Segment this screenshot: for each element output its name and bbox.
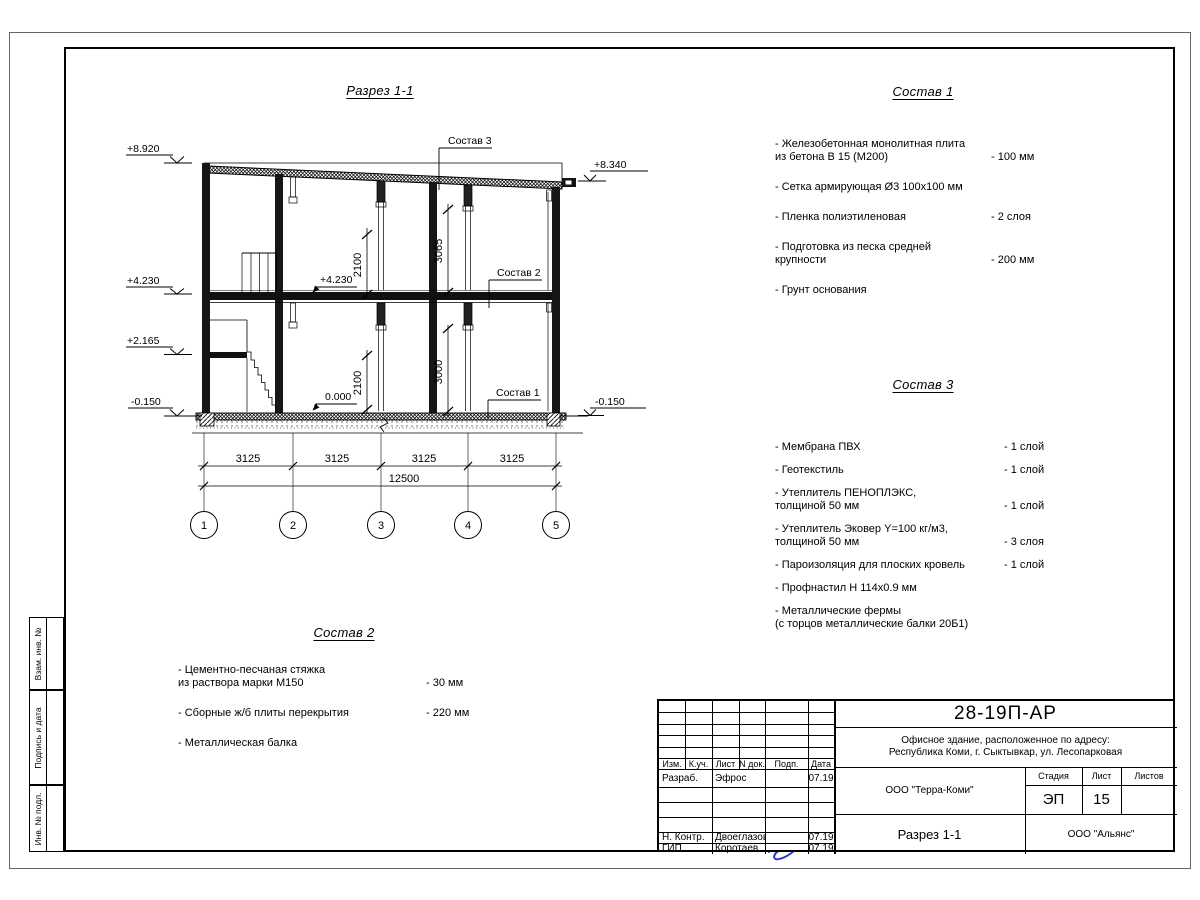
tb-role-gip: ГИП — [659, 843, 712, 854]
elev-text: -0.150 — [595, 396, 625, 408]
item-text: - Сетка армирующая Ø3 100х100 мм — [775, 181, 991, 194]
list-item: - Мембрана ПВХ- 1 слой — [775, 441, 1060, 454]
foundation-block-left — [200, 413, 214, 426]
item-text: - Металлические фермы (с торцов металлич… — [775, 605, 1004, 631]
bottom-dimensions: 3125 3125 3125 3125 12500 — [198, 433, 562, 511]
stage-label: Стадия — [1025, 767, 1082, 785]
stair-railing-upper — [242, 253, 277, 292]
list-item: - Подготовка из песка средней крупности-… — [775, 241, 1047, 267]
elev-minus0150-right: -0.150 — [578, 396, 646, 416]
list-item: - Сетка армирующая Ø3 100х100 мм — [775, 181, 1047, 194]
grid-extension-lines — [204, 433, 556, 511]
list-item: - Сборные ж/б плиты перекрытия- 220 мм — [178, 707, 478, 720]
item-text: - Сборные ж/б плиты перекрытия — [178, 707, 426, 720]
vertical-dimensions: 2100 2100 3065 3000 — [352, 204, 453, 417]
stage-value: ЭП — [1025, 785, 1082, 814]
elev-8340: +8.340 — [578, 159, 648, 181]
item-value: - 200 мм — [991, 254, 1047, 267]
item-text: - Железобетонная монолитная плита из бет… — [775, 138, 991, 164]
item-value: - 1 слой — [1004, 441, 1060, 454]
item-value: - 1 слой — [1004, 464, 1060, 477]
tb-line — [659, 817, 834, 818]
tb-line — [659, 747, 834, 748]
item-text: - Подготовка из песка средней крупности — [775, 241, 991, 267]
list-item: - Пленка полиэтиленовая- 2 слоя — [775, 211, 1047, 224]
elev-text: +4.230 — [127, 275, 160, 287]
project-address: Офисное здание, расположенное по адресу:… — [834, 727, 1177, 767]
tb-line — [659, 802, 834, 803]
tb-col-podp: Подп. — [765, 758, 808, 769]
tb-date: 07.19 — [808, 769, 834, 787]
tb-col-kuch: К.уч. — [685, 758, 712, 769]
grid-bubble-2: 2 — [290, 520, 296, 532]
elev-minus0150-left: -0.150 — [128, 396, 192, 416]
elev-text: +8.920 — [127, 143, 160, 155]
tb-line — [659, 712, 834, 713]
tb-name-korotaev: Коротаев — [712, 843, 765, 854]
callout-text: Состав 3 — [448, 135, 492, 147]
stair-steps — [247, 352, 276, 412]
item-text: - Пленка полиэтиленовая — [775, 211, 991, 224]
tb-role-razrab: Разраб. — [659, 769, 712, 787]
item-text: - Утеплитель ПЕНОПЛЭКС, толщиной 50 мм — [775, 487, 1004, 513]
tb-name-dvoeglazov: Двоеглазов — [712, 832, 765, 843]
callout-sostav2: Состав 2 — [489, 267, 542, 308]
item-value: - 1 слой — [1004, 559, 1060, 572]
elev-text: +8.340 — [594, 159, 627, 171]
address-line1: Офисное здание, расположенное по адресу: — [901, 735, 1110, 747]
dim-text: 3000 — [433, 360, 445, 384]
item-text: - Цементно-песчаная стяжка из раствора м… — [178, 664, 426, 690]
stair-landing — [210, 352, 247, 358]
drawing-sheet: Взам. инв. № Подпись и дата Инв. № подл. — [0, 0, 1200, 900]
elev-8920: +8.920 — [126, 143, 192, 163]
elev-text: -0.150 — [131, 396, 161, 408]
elev-0000-inner: 0.000 — [313, 391, 357, 411]
title-block: Изм. К.уч. Лист N док. Подп. Дата Разраб… — [657, 699, 1175, 852]
list-item: - Утеплитель ПЕНОПЛЭКС, толщиной 50 мм- … — [775, 487, 1060, 513]
grid-bubble-5: 5 — [553, 520, 559, 532]
tb-name-efros: Эфрос — [712, 769, 765, 787]
list-item: - Пароизоляция для плоских кровель- 1 сл… — [775, 559, 1060, 572]
sostav1-title: Состав 1 — [843, 84, 1003, 99]
contractor-name: ООО "Альянс" — [1025, 814, 1177, 854]
sostav3-title: Состав 3 — [843, 377, 1003, 392]
elevation-markers-left: +8.920 +4.230 +2.165 -0.150 — [126, 143, 192, 416]
grid-bubble-3: 3 — [378, 520, 384, 532]
tb-date: 07.19 — [808, 843, 834, 854]
list-item: - Железобетонная монолитная плита из бет… — [775, 138, 1047, 164]
drawing-name: Разрез 1-1 — [834, 814, 1025, 854]
tb-line — [659, 735, 834, 736]
floor-slab-level2 — [210, 291, 552, 303]
item-value: - 2 слоя — [991, 211, 1047, 224]
tb-role-nkontr: Н. Контр. — [659, 832, 712, 843]
dim-2100-top: 2100 — [352, 228, 372, 299]
sostav1-list: - Железобетонная монолитная плита из бет… — [775, 138, 1047, 314]
tb-line — [659, 787, 834, 788]
item-text: - Мембрана ПВХ — [775, 441, 1004, 454]
tb-col-data: Дата — [808, 758, 834, 769]
dim-text: 3065 — [433, 239, 445, 263]
span-dim-text: 3125 — [500, 453, 524, 465]
item-text: - Грунт основания — [775, 284, 991, 297]
ground-floor-slab — [166, 413, 588, 433]
dim-text: 2100 — [352, 371, 364, 395]
list-item: - Геотекстиль- 1 слой — [775, 464, 1060, 477]
callout-text: Состав 2 — [497, 267, 541, 279]
tb-col-list: Лист — [712, 758, 739, 769]
item-value: - 1 слой — [1004, 500, 1060, 513]
sostav2-list: - Цементно-песчаная стяжка из раствора м… — [178, 664, 478, 767]
sheet-number: 15 — [1082, 785, 1121, 814]
staircase — [210, 253, 277, 412]
sostav2-title: Состав 2 — [264, 625, 424, 640]
list-item: - Грунт основания — [775, 284, 1047, 297]
roof-assembly — [204, 163, 576, 189]
wall-grid1 — [202, 163, 210, 423]
callout-text: Состав 1 — [496, 387, 540, 399]
span-dim-text: 3125 — [236, 453, 260, 465]
tb-date: 07.19 — [808, 832, 834, 843]
item-value: - 30 мм — [426, 677, 478, 690]
item-text: - Металлическая балка — [178, 737, 426, 750]
span-dim-text: 3125 — [325, 453, 349, 465]
company-name: ООО "Терра-Коми" — [834, 767, 1025, 814]
list-item: - Утеплитель Эковер Y=100 кг/м3, толщино… — [775, 523, 1060, 549]
tb-line — [659, 724, 834, 725]
elev-text: +2.165 — [127, 335, 160, 347]
tb-col-izm: Изм. — [659, 758, 685, 769]
elev-2165: +2.165 — [126, 335, 192, 355]
list-item: - Металлическая балка — [178, 737, 478, 750]
grid-bubble-4: 4 — [465, 520, 471, 532]
grid-bubble-1: 1 — [201, 520, 207, 532]
span-dim-text: 3125 — [412, 453, 436, 465]
elev-4230-inner: +4.230 — [313, 274, 357, 293]
tb-col-ndok: N док. — [739, 758, 765, 769]
item-value: - 100 мм — [991, 151, 1047, 164]
document-number: 28-19П-АР — [834, 701, 1177, 727]
elev-4230-left: +4.230 — [126, 275, 192, 294]
address-line2: Республика Коми, г. Сыктывкар, ул. Лесоп… — [889, 747, 1122, 759]
elev-text: +4.230 — [320, 274, 353, 286]
item-text: - Пароизоляция для плоских кровель — [775, 559, 1004, 572]
item-text: - Утеплитель Эковер Y=100 кг/м3, толщино… — [775, 523, 1004, 549]
grid-bubbles: 1 2 3 4 5 — [191, 512, 570, 539]
item-value: - 220 мм — [426, 707, 478, 720]
foundation-block-right — [547, 413, 560, 426]
list-item: - Профнастил Н 114х0.9 мм — [775, 582, 1060, 595]
sostav3-list: - Мембрана ПВХ- 1 слой - Геотекстиль- 1 … — [775, 441, 1060, 641]
item-text: - Профнастил Н 114х0.9 мм — [775, 582, 1004, 595]
wall-grid5 — [552, 187, 560, 423]
elevation-markers-right: +8.340 -0.150 — [578, 159, 648, 416]
item-text: - Геотекстиль — [775, 464, 1004, 477]
list-item: - Цементно-песчаная стяжка из раствора м… — [178, 664, 478, 690]
list-item: - Металлические фермы (с торцов металлич… — [775, 605, 1060, 631]
section-title: Разрез 1-1 — [300, 83, 460, 98]
sheet-label: Лист — [1082, 767, 1121, 785]
item-value: - 3 слоя — [1004, 536, 1060, 549]
total-dim-text: 12500 — [389, 473, 420, 485]
dim-text: 2100 — [352, 253, 364, 277]
elev-text: 0.000 — [325, 391, 351, 403]
sheets-label: Листов — [1121, 767, 1177, 785]
